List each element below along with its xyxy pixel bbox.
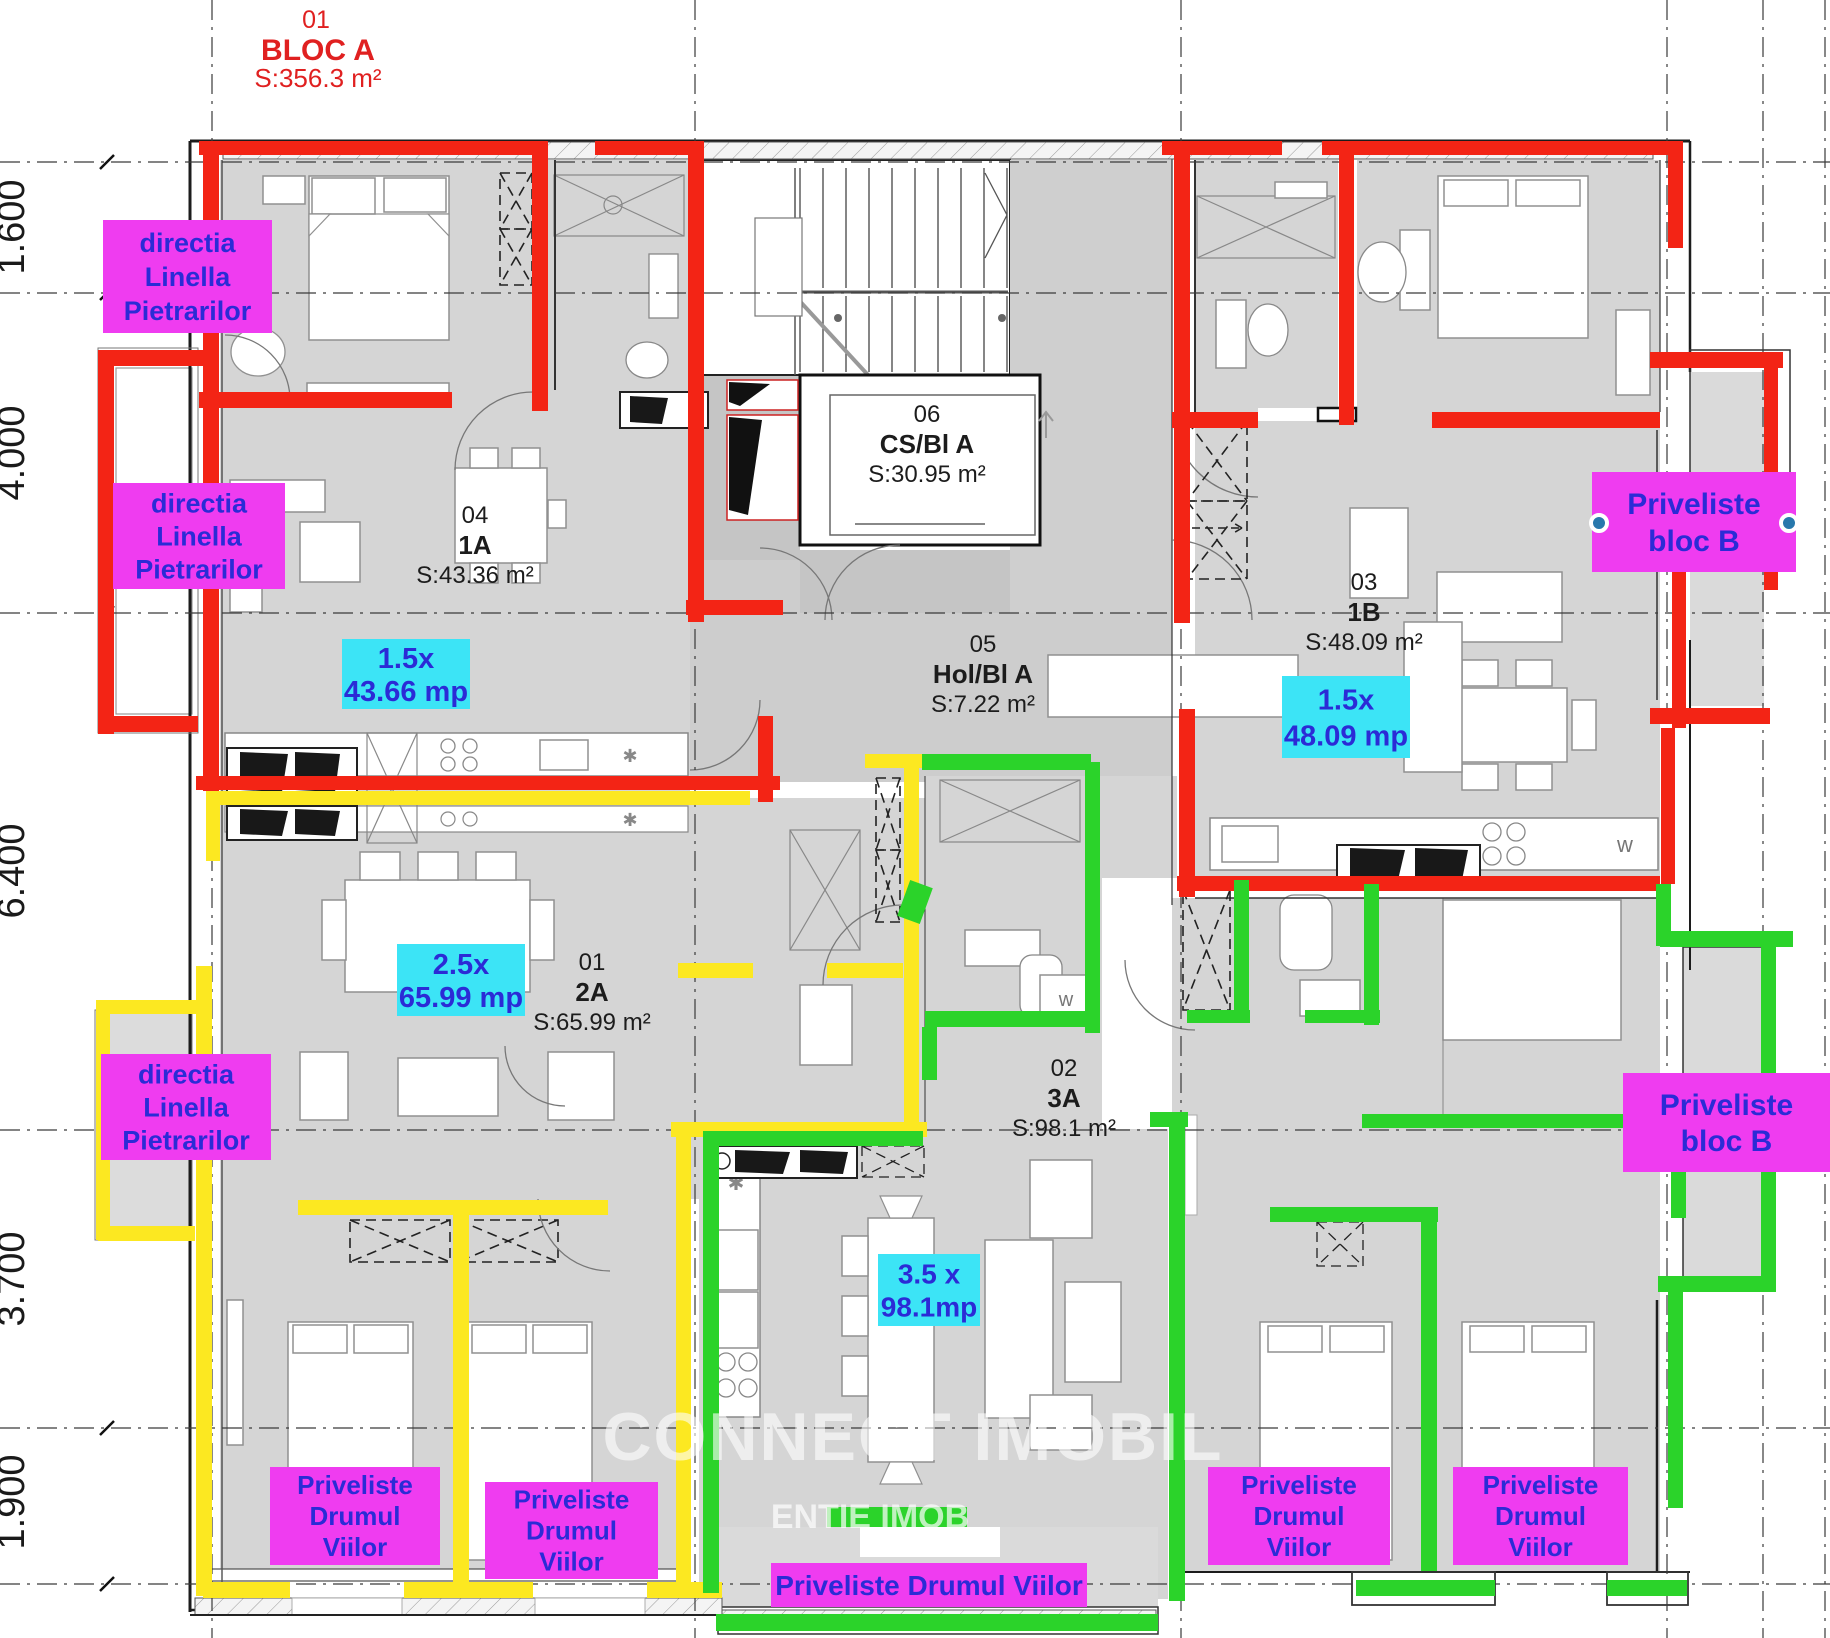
svg-text:S:48.09 m²: S:48.09 m² [1305, 629, 1422, 656]
svg-text:S:30.95 m²: S:30.95 m² [868, 461, 985, 488]
svg-text:01: 01 [302, 6, 330, 34]
svg-text:4.000: 4.000 [0, 405, 33, 500]
svg-text:3.5 x: 3.5 x [898, 1259, 961, 1290]
svg-text:Hol/Bl A: Hol/Bl A [933, 659, 1033, 689]
svg-text:w: w [1616, 832, 1633, 857]
svg-text:2.5x: 2.5x [433, 949, 489, 981]
svg-text:1.900: 1.900 [0, 1454, 33, 1549]
svg-text:Pietrarilor: Pietrarilor [124, 296, 252, 326]
svg-text:bloc B: bloc B [1648, 525, 1740, 558]
svg-text:2A: 2A [575, 977, 608, 1007]
svg-text:S:43.36 m²: S:43.36 m² [416, 562, 533, 589]
svg-text:Drumul: Drumul [1254, 1501, 1345, 1531]
svg-text:S:356.3 m²: S:356.3 m² [254, 63, 382, 93]
svg-text:Priveliste: Priveliste [297, 1470, 413, 1500]
svg-text:98.1mp: 98.1mp [881, 1292, 978, 1323]
svg-text:Linella: Linella [143, 1092, 230, 1122]
svg-text:Priveliste: Priveliste [1483, 1470, 1599, 1500]
svg-text:6.400: 6.400 [0, 823, 33, 918]
svg-text:directia: directia [139, 228, 236, 258]
svg-text:Priveliste: Priveliste [1241, 1470, 1357, 1500]
svg-text:w: w [1058, 989, 1074, 1011]
svg-text:bloc B: bloc B [1681, 1125, 1773, 1158]
svg-text:Drumul: Drumul [526, 1516, 617, 1546]
svg-text:1.5x: 1.5x [378, 643, 434, 675]
svg-text:S:98.1 m²: S:98.1 m² [1012, 1115, 1116, 1142]
svg-text:Priveliste Drumul Viilor: Priveliste Drumul Viilor [775, 1570, 1083, 1601]
svg-text:1.600: 1.600 [0, 179, 33, 274]
svg-text:48.09 mp: 48.09 mp [1284, 720, 1408, 752]
svg-text:Drumul: Drumul [310, 1501, 401, 1531]
svg-text:02: 02 [1051, 1055, 1078, 1082]
svg-text:Priveliste: Priveliste [1660, 1089, 1793, 1122]
svg-text:Priveliste: Priveliste [514, 1485, 630, 1515]
svg-text:Viilor: Viilor [1508, 1532, 1573, 1562]
svg-text:Linella: Linella [145, 262, 232, 292]
svg-text:✱: ✱ [622, 746, 637, 766]
svg-text:Priveliste: Priveliste [1627, 488, 1760, 521]
svg-text:04: 04 [462, 502, 489, 529]
svg-text:Viilor: Viilor [1267, 1532, 1332, 1562]
svg-text:directia: directia [151, 488, 248, 518]
svg-text:CS/Bl A: CS/Bl A [880, 429, 975, 459]
svg-text:01: 01 [579, 949, 606, 976]
svg-text:3.700: 3.700 [0, 1231, 33, 1326]
svg-text:Viilor: Viilor [539, 1547, 604, 1577]
svg-text:Drumul: Drumul [1495, 1501, 1586, 1531]
svg-text:06: 06 [914, 401, 941, 428]
svg-text:Linella: Linella [156, 521, 243, 551]
svg-text:ENTIE IMOB: ENTIE IMOB [771, 1498, 969, 1536]
svg-text:1A: 1A [458, 530, 491, 560]
svg-text:S:7.22 m²: S:7.22 m² [931, 691, 1035, 718]
svg-text:✱: ✱ [622, 810, 637, 830]
svg-text:S:65.99 m²: S:65.99 m² [533, 1009, 650, 1036]
svg-text:directia: directia [138, 1059, 235, 1089]
svg-text:1B: 1B [1347, 597, 1380, 627]
svg-text:Viilor: Viilor [323, 1532, 388, 1562]
svg-text:05: 05 [970, 631, 997, 658]
svg-text:65.99 mp: 65.99 mp [399, 982, 523, 1014]
svg-text:CONNECT IMOBIL: CONNECT IMOBIL [602, 1399, 1223, 1475]
svg-text:1.5x: 1.5x [1318, 684, 1374, 716]
svg-text:03: 03 [1351, 569, 1378, 596]
svg-text:Pietrarilor: Pietrarilor [135, 554, 263, 584]
svg-text:3A: 3A [1047, 1083, 1080, 1113]
svg-text:Pietrarilor: Pietrarilor [122, 1125, 250, 1155]
svg-text:43.66 mp: 43.66 mp [344, 676, 468, 708]
